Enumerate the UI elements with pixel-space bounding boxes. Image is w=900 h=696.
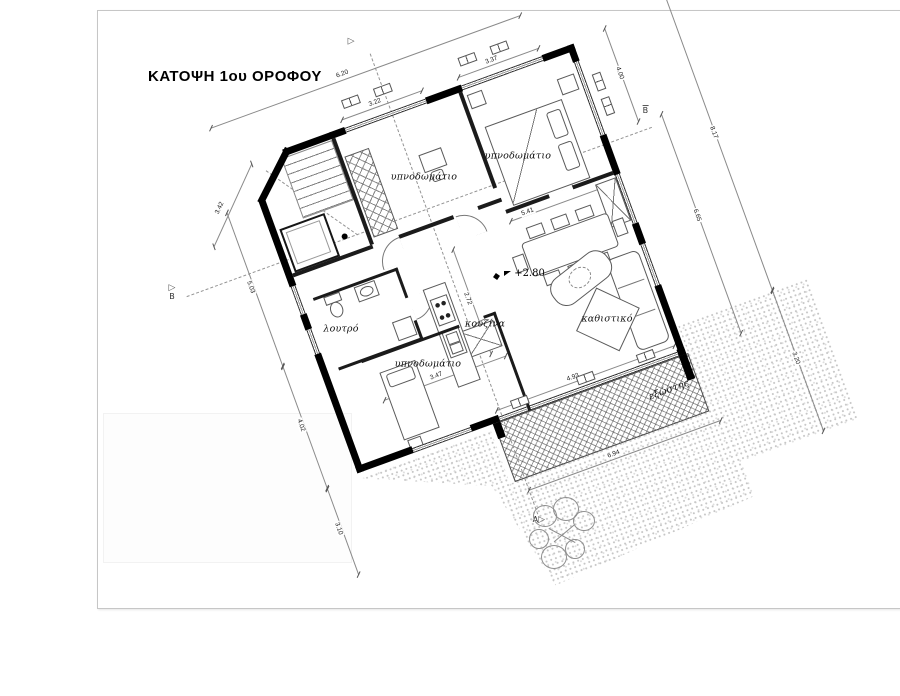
section-marker-label: B <box>643 106 649 115</box>
window-tag <box>592 72 607 92</box>
window-tag <box>457 52 477 67</box>
room-label-bedroom-3: υπνοδωμάτιο <box>395 359 461 370</box>
wall-segment <box>398 215 454 239</box>
desk <box>418 147 447 173</box>
dimension-label: 8.17 <box>708 124 720 140</box>
room-label-kitchen: κουζίνα <box>465 319 505 330</box>
door-arc <box>455 208 487 240</box>
level-marker: +2.80 <box>495 268 545 279</box>
tree-foliage <box>541 545 567 569</box>
dimension-label: 4.00 <box>614 65 626 81</box>
tree-foliage <box>573 511 595 531</box>
wall-segment <box>329 127 346 139</box>
nightstand <box>467 90 487 110</box>
wall-segment <box>425 85 463 105</box>
section-marker-a-top: ▷ <box>348 38 355 47</box>
wall-segment <box>314 353 364 474</box>
wall-segment <box>395 267 409 298</box>
dimension-label: 3.10 <box>333 521 345 537</box>
window-strip <box>291 285 306 315</box>
floor-plan-page: ΚΑΤΟΨΗ 1ου ΟΡΟΦΟΥ <box>0 0 900 696</box>
wall-segment <box>477 198 502 210</box>
section-marker-b-right: B <box>643 105 649 115</box>
level-flag-icon <box>504 271 511 276</box>
level-value: +2.80 <box>514 268 545 279</box>
wall-segment <box>300 313 312 330</box>
dimension-label: 5.03 <box>245 279 257 295</box>
dimension-label: 6.65 <box>691 207 703 223</box>
door-arc <box>375 237 408 270</box>
dimension-line <box>661 114 742 334</box>
chamfer-wall <box>257 147 291 205</box>
shower <box>392 316 418 342</box>
window-tag <box>373 83 393 98</box>
window-tag <box>489 40 509 55</box>
window-strip <box>306 329 320 355</box>
section-marker-b-left: ▷ B <box>169 284 176 302</box>
dimension-label: 2.72 <box>462 291 474 307</box>
room-label-bedroom-2: υπνοδωμάτιο <box>485 151 551 162</box>
building: 6.20 3.42 5.03 4.02 3.10 4.00 6.65 8.17 … <box>245 44 687 474</box>
section-arrow-icon: ▷ <box>348 38 355 47</box>
wall-segment <box>632 222 646 245</box>
section-marker-label: B <box>169 292 175 301</box>
window-tag <box>341 94 361 109</box>
dimension-label: 3.42 <box>213 200 226 216</box>
dimension-label: 4.02 <box>295 417 307 433</box>
room-label-bedroom-1: υπνοδωμάτιο <box>391 172 457 183</box>
wall-segment <box>567 44 580 63</box>
tree <box>527 497 607 577</box>
wall-segment <box>313 267 399 301</box>
toilet-bowl <box>328 300 346 319</box>
stair-newel-dot <box>341 233 349 241</box>
room-label-bathroom: λουτρό <box>323 324 358 335</box>
level-point-icon <box>493 273 500 280</box>
room-label-living: καθιστικό <box>581 314 632 325</box>
nightstand <box>557 73 580 95</box>
window-tag <box>601 96 616 116</box>
plan-title: ΚΑΤΟΨΗ 1ου ΟΡΟΦΟΥ <box>148 68 322 85</box>
